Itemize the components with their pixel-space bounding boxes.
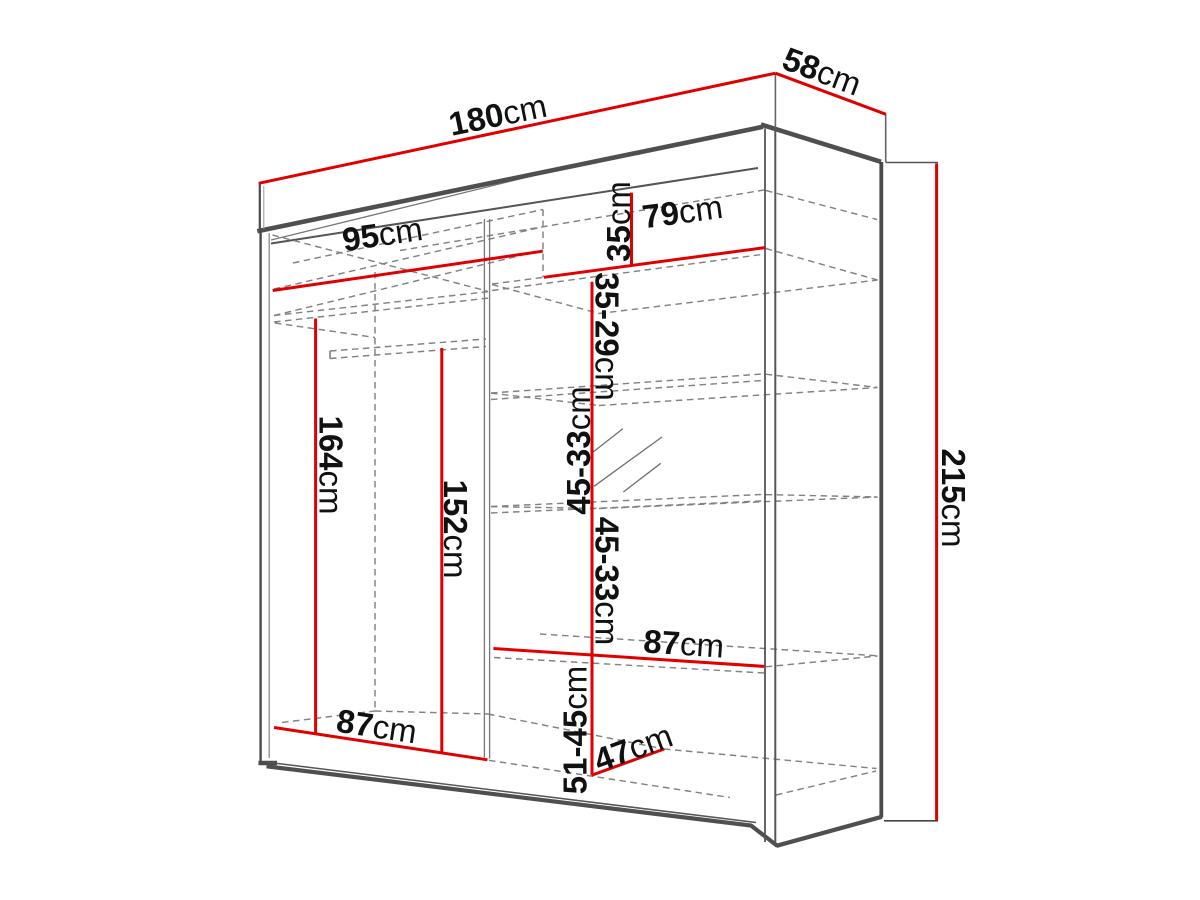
svg-text:164cm: 164cm [313,415,350,514]
svg-text:215cm: 215cm [935,448,972,547]
svg-text:35cm: 35cm [600,181,637,262]
svg-text:152cm: 152cm [437,479,474,578]
svg-text:35-29cm: 35-29cm [589,272,626,400]
svg-text:45-33cm: 45-33cm [589,517,626,645]
svg-text:51-45cm: 51-45cm [557,666,594,794]
svg-text:87cm: 87cm [642,622,725,664]
svg-text:45-33cm: 45-33cm [560,386,597,514]
